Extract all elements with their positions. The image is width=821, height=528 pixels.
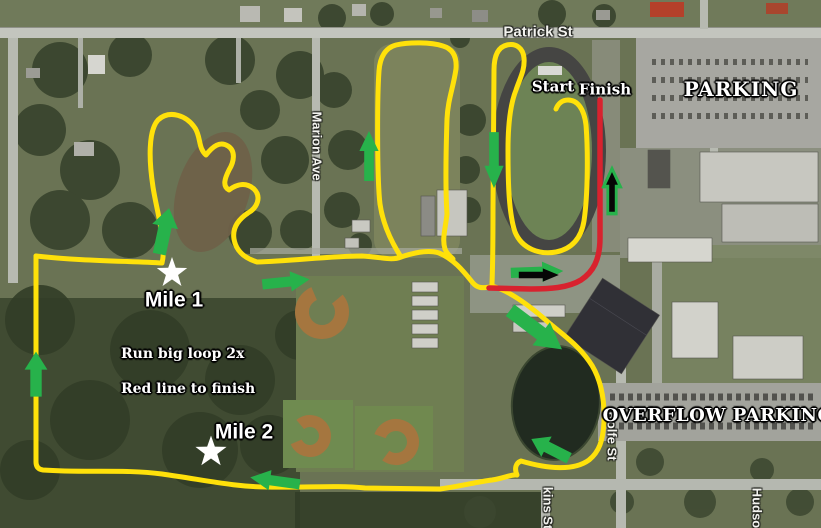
street-label-patrick: Patrick St	[503, 25, 572, 40]
street-label-kins: kins St	[542, 487, 555, 528]
north-strip	[0, 0, 821, 29]
street-label-marion: Marion Ave	[311, 111, 324, 180]
course-map: Patrick St Marion Ave Rolfe St kins St H…	[0, 0, 821, 528]
overflow-parking-label: OVERFLOW PARKING	[603, 407, 821, 425]
street-label-hudson: Hudson	[751, 488, 764, 528]
patrick-street-road	[0, 28, 821, 38]
start-label: Start	[532, 80, 574, 95]
red-roof-house	[650, 2, 684, 17]
finish-label: Finish	[579, 83, 631, 98]
parking-label: PARKING	[684, 79, 799, 99]
course-note-finish: Red line to finish	[121, 382, 255, 396]
mile2-label: Mile 2	[215, 422, 273, 443]
mile1-label: Mile 1	[145, 290, 203, 311]
softball-outfield-1	[283, 400, 353, 468]
course-note-loops: Run big loop 2x	[121, 347, 244, 361]
